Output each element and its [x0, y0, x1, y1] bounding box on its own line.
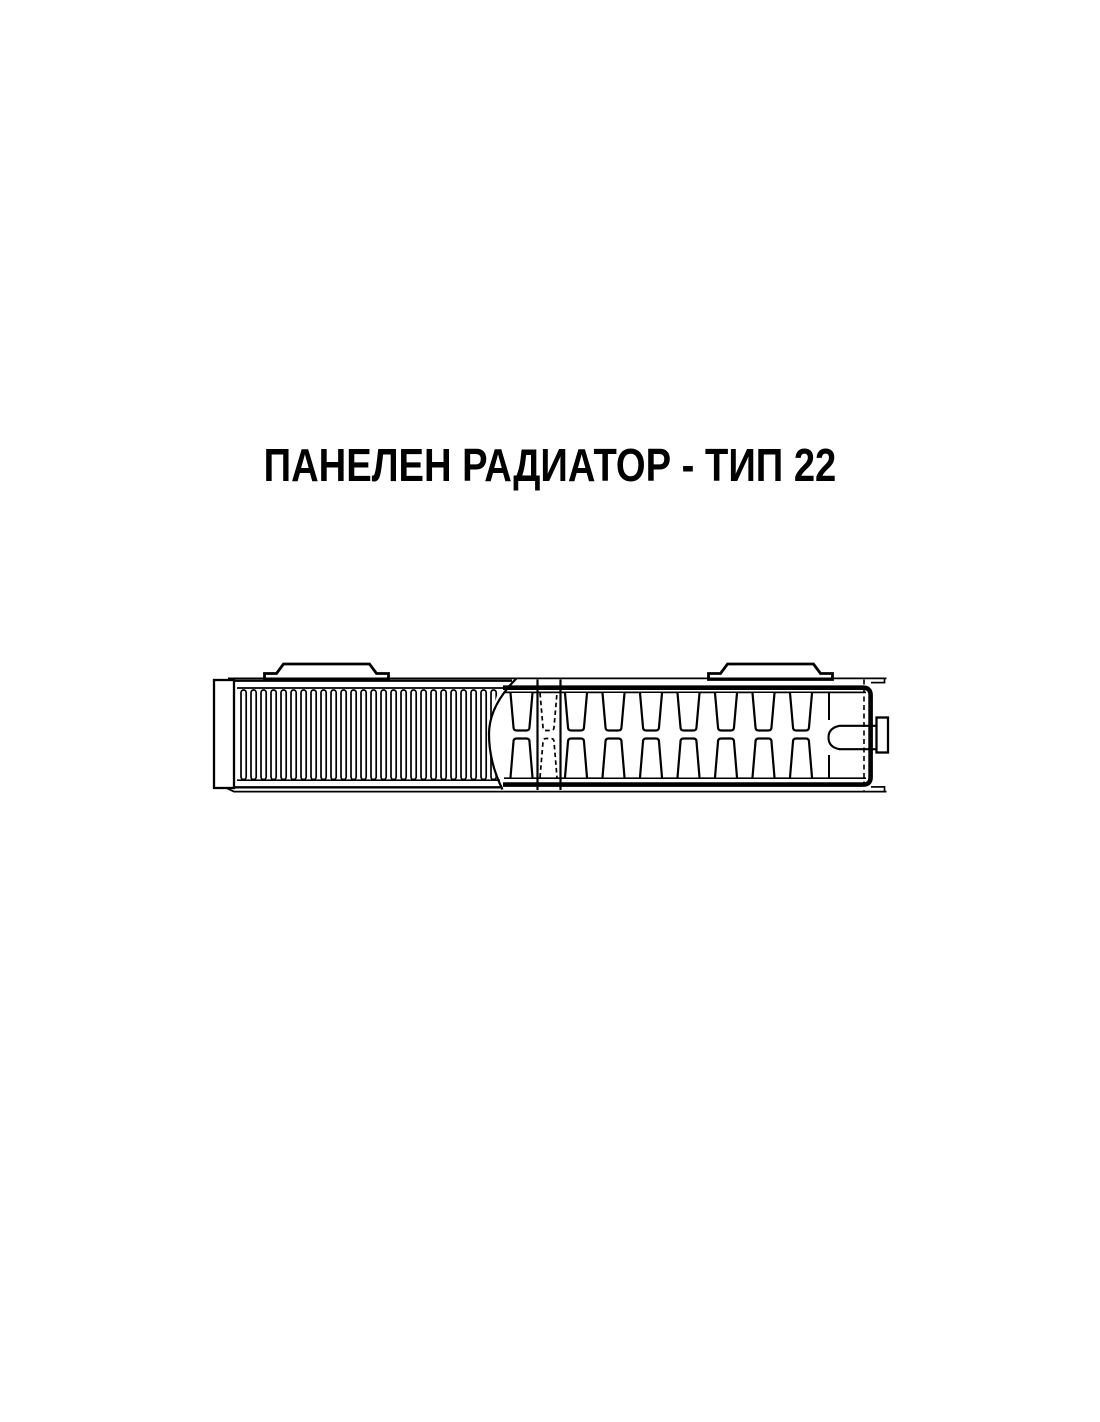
page-background: { "page": { "title": "ПАНЕЛЕН РАДИАТОР -… — [0, 0, 1100, 1422]
mounting-brackets — [265, 664, 833, 680]
pipe-connection-boss — [877, 718, 889, 753]
convector-channel-slots — [511, 693, 813, 778]
front-panel-grille-fins — [241, 690, 506, 780]
radiator-diagram — [0, 0, 1100, 1422]
left-end-cap — [214, 680, 234, 788]
